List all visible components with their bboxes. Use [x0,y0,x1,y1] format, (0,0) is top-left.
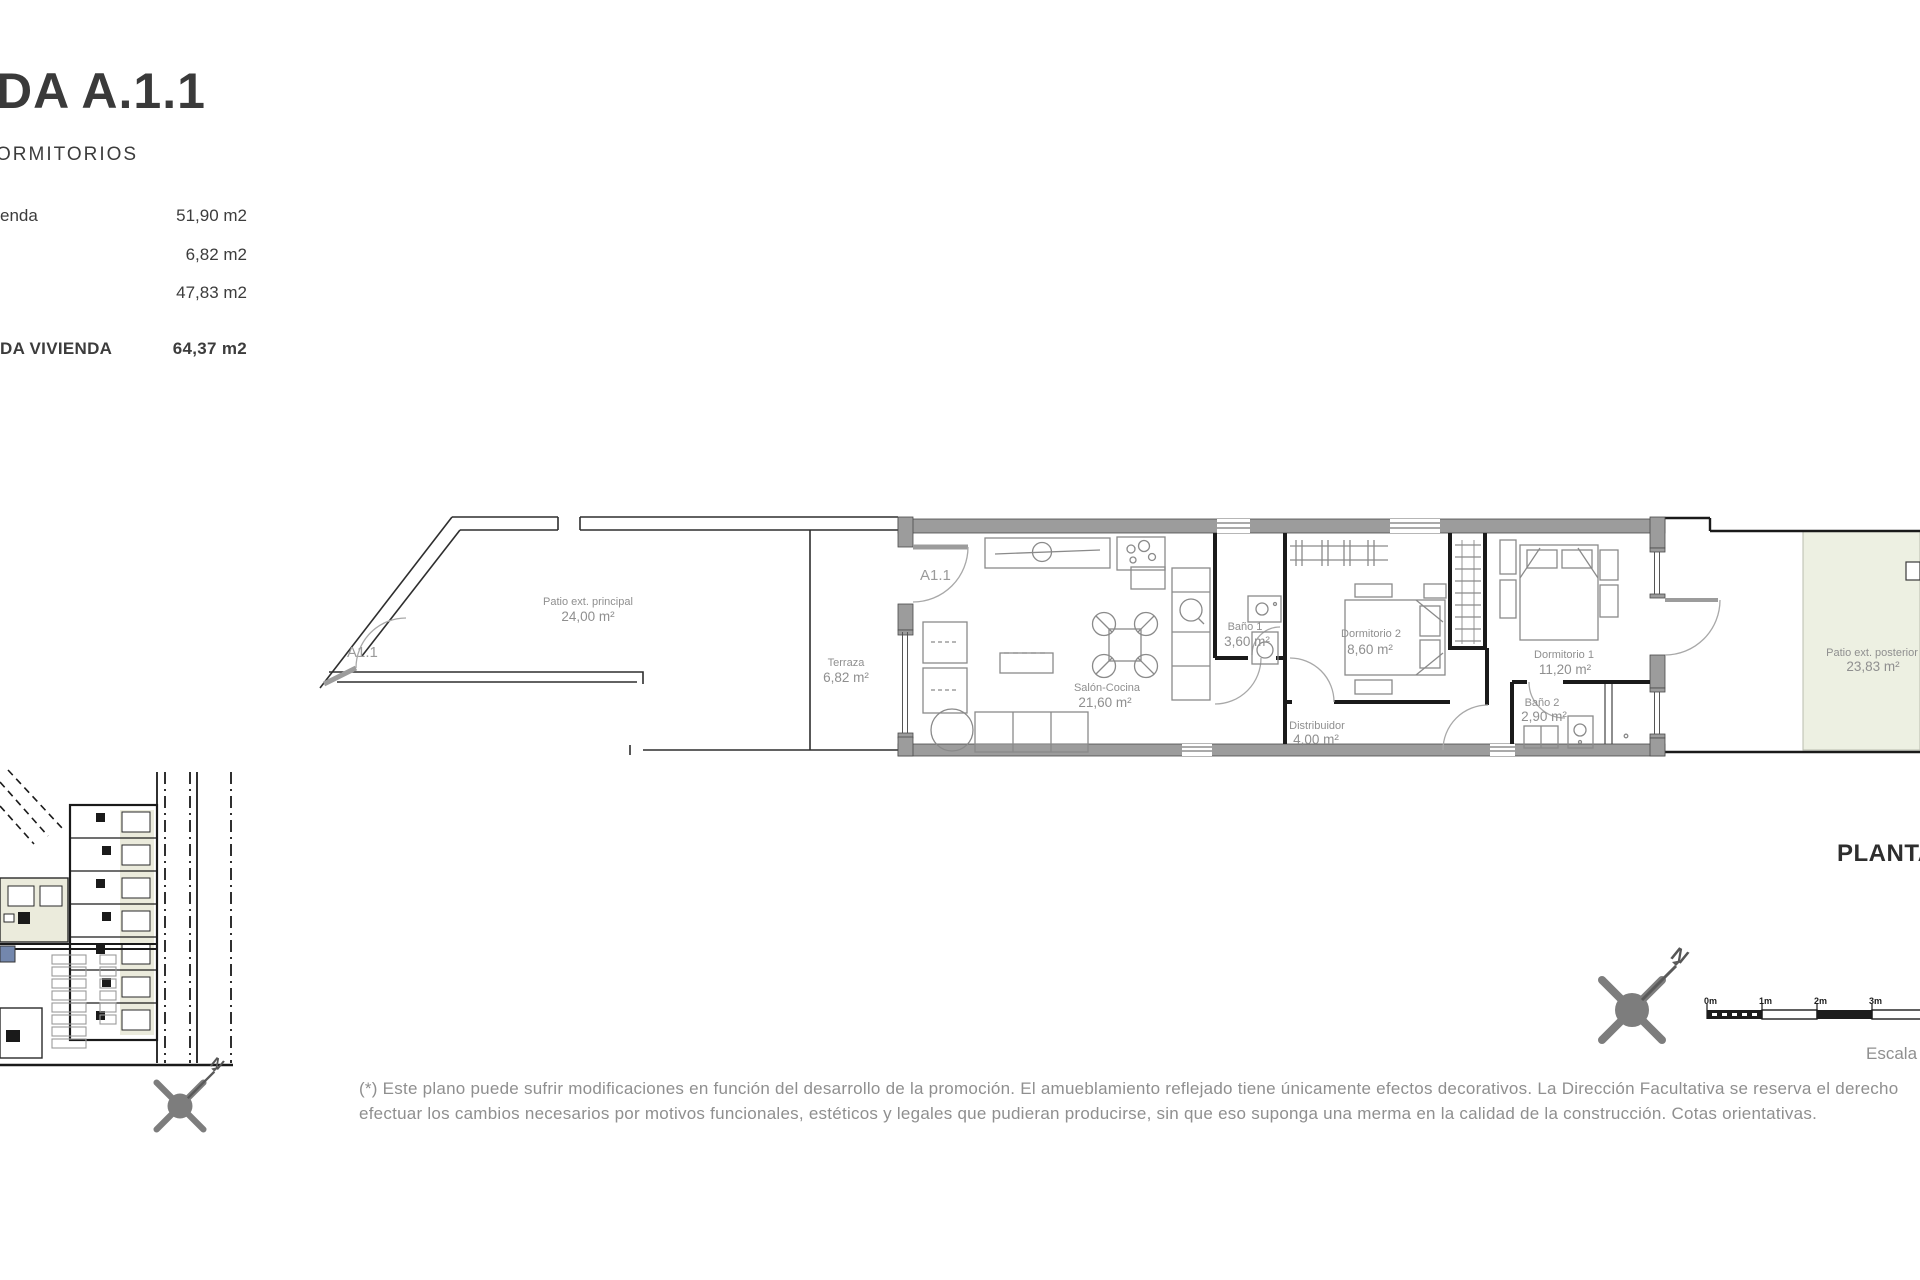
room-area-dormitorio2: 8,60 m² [1347,642,1393,657]
room-area-distribuidor: 4,00 m² [1293,732,1339,747]
room-label-patio-posterior: Patio ext. posterior [1826,647,1918,659]
room-label-patio-principal: Patio ext. principal [543,596,633,608]
room-label-bano1: Baño 1 [1228,621,1263,633]
room-label-dormitorio1: Dormitorio 1 [1534,649,1594,661]
room-label-salon: Salón-Cocina [1074,682,1141,694]
north-compass-plan: N [1602,943,1691,1040]
scale-tick-label: 0m [1704,996,1717,1006]
rear-door [1665,600,1720,655]
dormitorio1-furniture [1500,540,1618,640]
room-area-patio-principal: 24,00 m² [561,609,615,624]
room-area-salon: 21,60 m² [1078,695,1132,710]
floor-plan-svg: Patio ext. principal 24,00 m² Terraza 6,… [0,0,1920,1280]
room-label-terraza: Terraza [828,657,866,669]
wardrobe-shelves [1455,540,1481,644]
scale-tick-label: 2m [1814,996,1827,1006]
room-area-patio-posterior: 23,83 m² [1846,659,1900,674]
dormitorio2-furniture [1290,540,1446,694]
room-label-distribuidor: Distribuidor [1289,720,1345,732]
patio-principal-outline [320,517,898,755]
bano2-partition [1605,684,1612,744]
room-area-terraza: 6,82 m² [823,670,869,685]
room-labels: Patio ext. principal 24,00 m² Terraza 6,… [543,596,1918,747]
scale-tick-label: 1m [1759,996,1772,1006]
site-plan [0,770,233,1065]
room-area-dormitorio1: 11,20 m² [1539,662,1592,677]
interior-partitions [1215,533,1650,744]
unit-tag-entry: A1.1 [920,567,951,584]
scale-tick-label: 3m [1869,996,1882,1006]
salon-furniture [923,537,1210,752]
patio-posterior-area [1665,518,1920,752]
north-letter: N [1668,943,1692,969]
scale-bar: 0m 1m 2m 3m [1704,996,1920,1019]
room-area-bano2: 2,90 m² [1521,709,1567,724]
unit-tag-patio: A1.1 [347,644,378,661]
room-label-bano2: Baño 2 [1525,697,1560,709]
room-label-dormitorio2: Dormitorio 2 [1341,628,1401,640]
room-area-bano1: 3,60 m² [1224,634,1270,649]
